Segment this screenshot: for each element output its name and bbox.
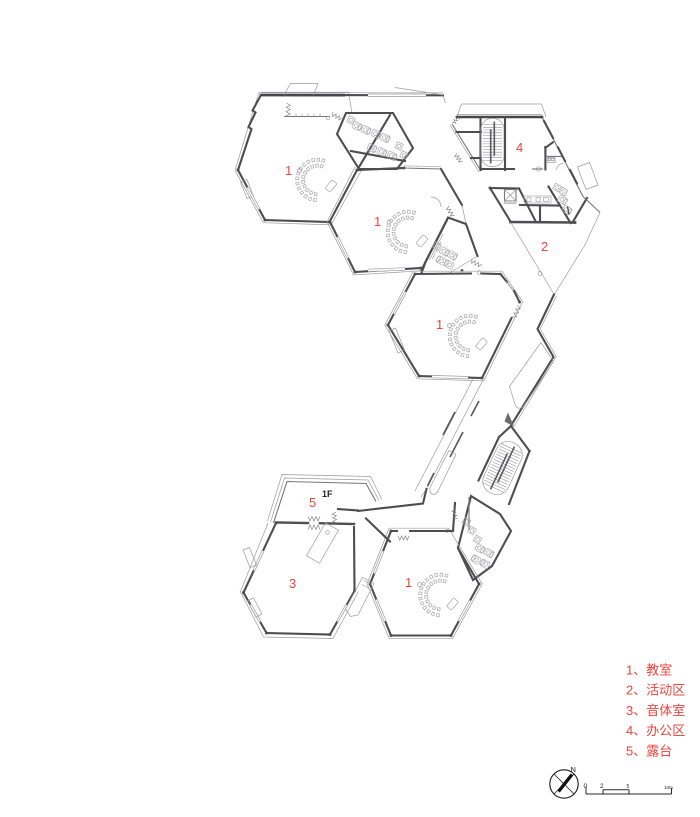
svg-text:1: 1 bbox=[436, 317, 443, 332]
svg-text:1、教室: 1、教室 bbox=[626, 663, 672, 678]
svg-text:0: 0 bbox=[584, 783, 588, 790]
svg-text:3: 3 bbox=[289, 576, 296, 591]
svg-text:2、活动区: 2、活动区 bbox=[626, 683, 685, 698]
svg-text:4: 4 bbox=[516, 140, 523, 155]
svg-text:1: 1 bbox=[374, 214, 381, 229]
svg-text:1: 1 bbox=[285, 163, 292, 178]
svg-text:2: 2 bbox=[600, 783, 604, 790]
svg-text:N: N bbox=[571, 765, 576, 774]
svg-text:1F: 1F bbox=[322, 489, 333, 499]
svg-text:5、露台: 5、露台 bbox=[626, 743, 672, 758]
svg-text:5: 5 bbox=[309, 495, 316, 510]
svg-text:1: 1 bbox=[405, 575, 412, 590]
svg-text:4、办公区: 4、办公区 bbox=[626, 723, 685, 738]
svg-text:3、音体室: 3、音体室 bbox=[626, 703, 685, 718]
svg-text:5: 5 bbox=[627, 784, 630, 790]
svg-text:10m: 10m bbox=[664, 785, 673, 790]
svg-text:2: 2 bbox=[541, 239, 548, 254]
